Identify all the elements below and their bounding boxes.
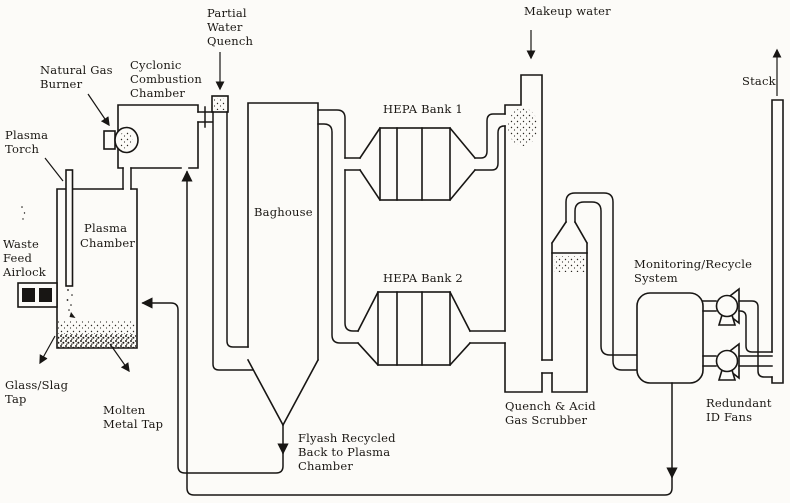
plasma-torch-tube [66, 170, 73, 286]
quench-tower [505, 30, 552, 392]
plasma-torch-pointer-line [45, 158, 63, 181]
label-quench-acid-gas-scrubber: Gas Scrubber [505, 413, 588, 427]
baghouse-outlet-manifold [318, 110, 360, 343]
label-waste-feed-airlock: Waste [3, 237, 39, 251]
label-molten-metal-tap: Metal Tap [103, 417, 163, 431]
label-flyash-recycle: Chamber [298, 459, 353, 473]
hepa1-outlet-funnel [450, 128, 475, 200]
label-hepa-bank-2: HEPA Bank 2 [383, 271, 463, 285]
label-plasma-chamber: Chamber [80, 236, 135, 250]
label-makeup-water: Makeup water [524, 4, 611, 18]
hepa2-inlet-funnel [358, 292, 378, 365]
monitoring-recycle-system [637, 293, 703, 383]
feed-particles [21, 206, 25, 220]
torch-arc-spray [67, 289, 76, 318]
slag-layer-lower [58, 334, 136, 348]
label-cyclonic-combustion-chamber: Cyclonic [130, 58, 181, 72]
baghouse [248, 103, 318, 425]
fan2-inlet-pipe [703, 356, 716, 366]
hepa2-outlet-duct [470, 331, 505, 343]
baghouse-vessel [248, 103, 318, 425]
fan2-icon [717, 351, 738, 372]
fan1-inlet-pipe [703, 301, 716, 311]
label-stack: Stack [742, 74, 777, 88]
monitoring-system-unit [637, 293, 703, 383]
hepa1-branch-duct [345, 158, 360, 170]
label-cyclonic-combustion-chamber: Chamber [130, 86, 185, 100]
scrubber-gooseneck-inner [575, 202, 637, 355]
label-monitoring-recycle-system: System [634, 271, 678, 285]
hepa-bank-1 [360, 114, 505, 200]
label-plasma-torch: Torch [5, 142, 39, 156]
label-cyclonic-combustion-chamber: Combustion [130, 72, 202, 86]
hepa1-inlet-funnel [360, 128, 380, 200]
tower-bridge-duct [542, 360, 552, 373]
quench-tower-spray [508, 108, 538, 146]
quench-downcomer-duct [213, 112, 253, 370]
label-glass-slag-tap: Glass/Slag [5, 378, 69, 392]
label-redundant-id-fans: Redundant [706, 396, 772, 410]
hepa1-riser-inner [475, 114, 505, 158]
label-natural-gas-burner: Natural Gas [40, 63, 113, 77]
label-plasma-torch: Plasma [5, 128, 48, 142]
label-plasma-chamber: Plasma [84, 221, 127, 235]
label-glass-slag-tap: Tap [5, 392, 27, 406]
scrubber-vessel [552, 222, 587, 392]
label-baghouse: Baghouse [254, 205, 313, 219]
fan1-outlet-inner [739, 311, 772, 352]
hepa-bank-2 [358, 292, 505, 365]
label-hepa-bank-1: HEPA Bank 1 [383, 102, 463, 116]
hepa1-housing [380, 128, 450, 200]
chamber-riser-pipe [123, 168, 131, 189]
manifold-outer [318, 110, 358, 331]
labels: Natural Gas Burner Cyclonic Combustion C… [2, 4, 777, 473]
label-flyash-recycle: Back to Plasma [298, 445, 390, 459]
label-partial-water-quench: Quench [207, 34, 253, 48]
fan1-icon [717, 296, 738, 317]
label-monitoring-recycle-system: Monitoring/Recycle [634, 257, 752, 271]
quench-spray [214, 98, 226, 110]
slag-layer-upper [58, 321, 136, 334]
glass-slag-tap-arrow [40, 336, 55, 363]
airlock-door-2 [39, 288, 52, 302]
diagram-svg: Natural Gas Burner Cyclonic Combustion C… [0, 0, 790, 503]
hepa2-housing [378, 292, 450, 365]
natural-gas-burner [88, 94, 138, 153]
label-quench-acid-gas-scrubber: Quench & Acid [505, 399, 596, 413]
label-redundant-id-fans: ID Fans [706, 410, 752, 424]
process-flow-diagram: Natural Gas Burner Cyclonic Combustion C… [0, 0, 790, 503]
hepa1-riser-outer [475, 126, 505, 170]
label-molten-metal-tap: Molten [103, 403, 146, 417]
acid-gas-scrubber [552, 193, 637, 392]
label-waste-feed-airlock: Airlock [2, 265, 47, 279]
label-flyash-recycle: Flyash Recycled [298, 431, 396, 445]
redundant-id-fans [703, 289, 772, 380]
quench-connector [198, 107, 212, 127]
burner-pointer-arrow [88, 94, 109, 125]
partial-water-quench [198, 52, 253, 370]
stack [772, 50, 783, 383]
label-partial-water-quench: Partial [207, 6, 247, 20]
fan2-outlet-pipe [739, 356, 772, 366]
stack-tube [772, 100, 783, 383]
scrubber-spray [554, 256, 585, 272]
label-partial-water-quench: Water [207, 20, 243, 34]
label-natural-gas-burner: Burner [40, 77, 83, 91]
label-waste-feed-airlock: Feed [3, 251, 33, 265]
hepa2-outlet-funnel [450, 292, 470, 365]
airlock-door-1 [22, 288, 35, 302]
manifold-inner [318, 124, 358, 343]
burner-base [104, 131, 115, 149]
burner-flame [119, 132, 133, 149]
